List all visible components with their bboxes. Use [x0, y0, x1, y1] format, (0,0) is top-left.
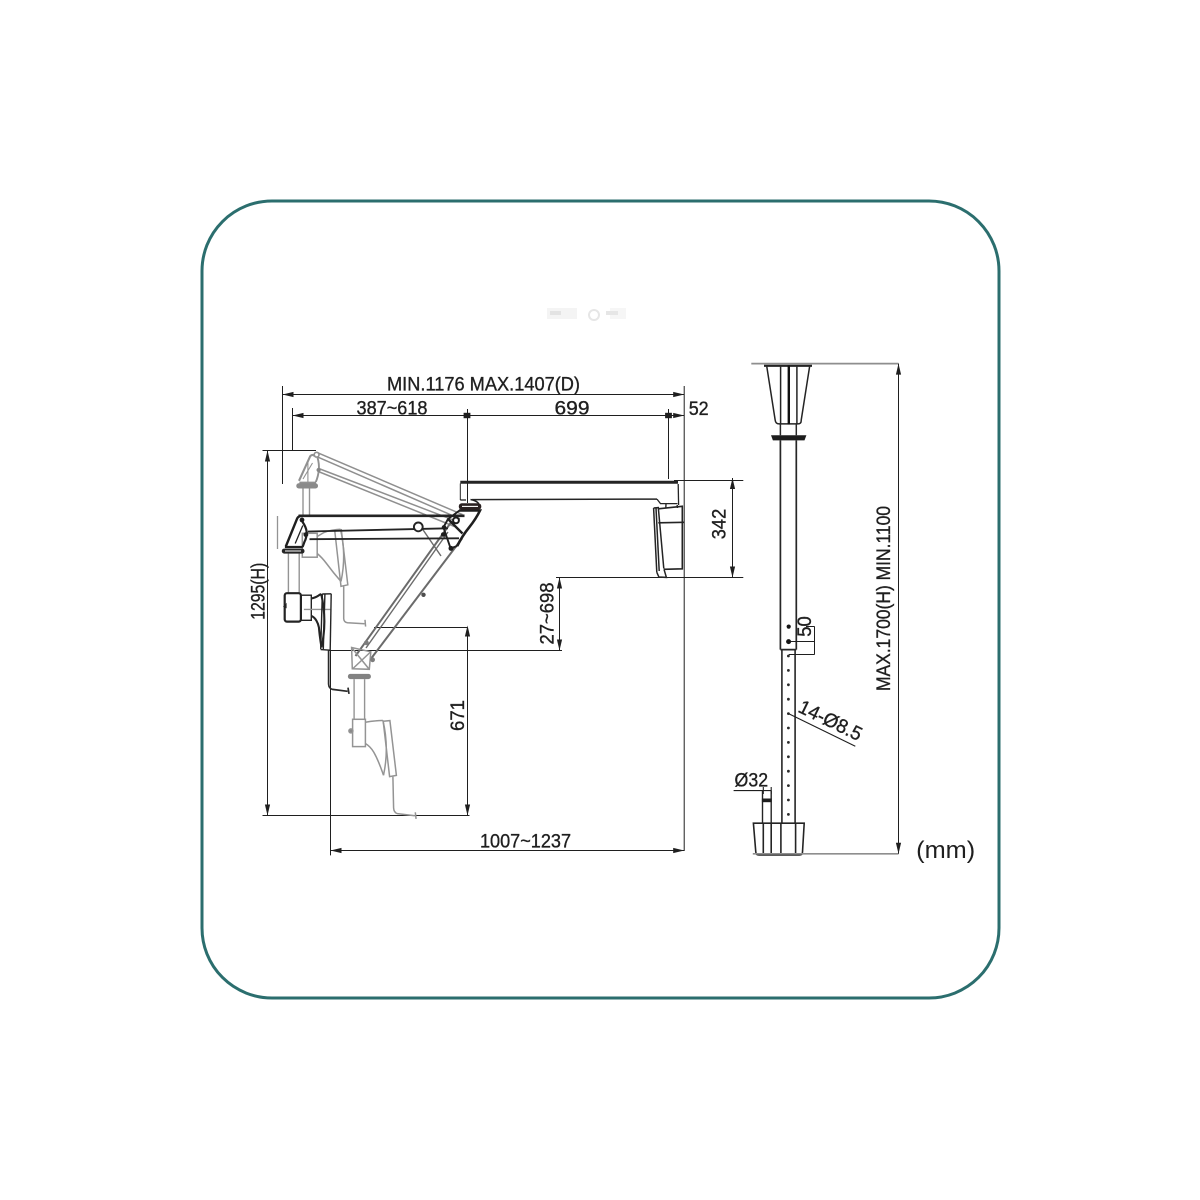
svg-text:1007~1237: 1007~1237 — [480, 831, 571, 853]
svg-text:Ø32: Ø32 — [735, 770, 769, 792]
svg-text:699: 699 — [555, 398, 590, 420]
svg-text:342: 342 — [709, 509, 731, 540]
svg-text:387~618: 387~618 — [357, 398, 428, 420]
svg-text:MAX.1700(H) MIN.1100: MAX.1700(H) MIN.1100 — [873, 506, 895, 691]
svg-text:1295(H): 1295(H) — [248, 563, 270, 620]
svg-text:671: 671 — [447, 700, 469, 731]
svg-text:27~698: 27~698 — [537, 583, 559, 645]
svg-text:MIN.1176 MAX.1407(D): MIN.1176 MAX.1407(D) — [387, 374, 580, 396]
svg-text:(mm): (mm) — [916, 837, 975, 864]
svg-text:50: 50 — [794, 616, 816, 637]
svg-text:52: 52 — [689, 398, 709, 420]
